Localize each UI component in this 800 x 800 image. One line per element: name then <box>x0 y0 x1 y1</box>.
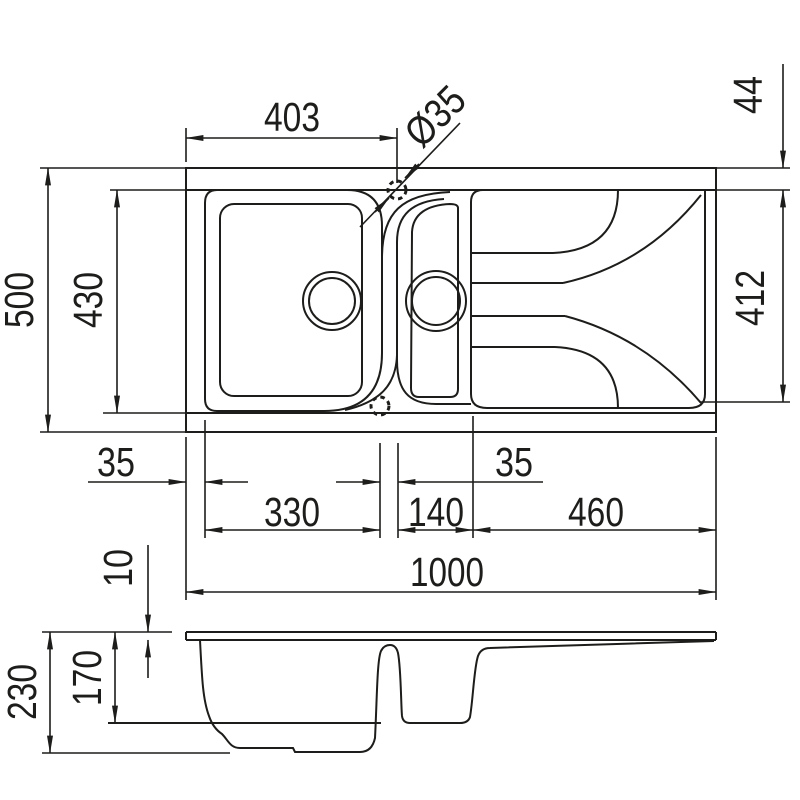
section-bowl-profile <box>200 640 714 752</box>
drawing-canvas: 403 Ø35 44 500 430 412 35 35 330 140 460… <box>0 0 800 800</box>
leader-arrow-upper <box>405 164 419 178</box>
main-drain-outer <box>303 272 361 330</box>
drainer-board <box>471 190 705 408</box>
dim-label-460: 460 <box>568 489 624 535</box>
dim-label-140: 140 <box>408 489 464 535</box>
drainer-flute-curve-2 <box>563 195 701 283</box>
dim-label-430: 430 <box>65 272 111 328</box>
top-view-dimensions: 403 Ø35 44 500 430 412 35 35 330 140 460… <box>0 64 790 600</box>
dim-label-1000: 1000 <box>410 549 484 595</box>
dim-label-10: 10 <box>95 549 141 587</box>
top-view <box>186 123 716 432</box>
dim-label-230: 230 <box>0 664 45 720</box>
main-bowl-inner <box>220 204 362 396</box>
dim-label-tap-diameter: Ø35 <box>396 77 475 156</box>
dim-label-44: 44 <box>725 76 771 114</box>
section-view <box>108 632 716 752</box>
half-bowl <box>397 199 471 404</box>
dim-label-403: 403 <box>264 94 320 140</box>
drainer-flute-curve-4 <box>555 347 618 408</box>
dim-label-412: 412 <box>727 270 773 326</box>
section-view-dimensions: 10 170 230 <box>0 545 230 753</box>
waist-curve-top <box>382 192 450 258</box>
main-drain-inner <box>309 278 355 324</box>
dim-label-330: 330 <box>264 489 320 535</box>
dim-label-35-right: 35 <box>495 439 533 485</box>
dim-label-500: 500 <box>0 272 42 328</box>
main-bowl <box>205 190 382 411</box>
half-bowl-inner <box>411 204 458 397</box>
drainer-outline <box>471 190 705 408</box>
dim-label-35-left: 35 <box>97 439 135 485</box>
dim-label-170: 170 <box>64 650 110 706</box>
drainer-flute-curve-1 <box>553 190 618 253</box>
sink-technical-drawing: 403 Ø35 44 500 430 412 35 35 330 140 460… <box>0 0 800 800</box>
sink-outline <box>186 168 716 432</box>
drainer-flute-curve-3 <box>565 316 701 403</box>
half-drain-inner <box>412 277 460 325</box>
